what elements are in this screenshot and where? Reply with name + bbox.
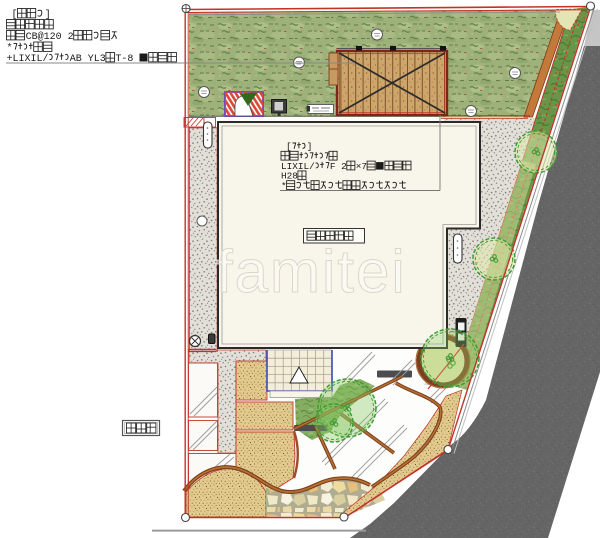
svg-text:[: [ — [12, 9, 18, 21]
svg-text:CB@120 2: CB@120 2 — [26, 31, 74, 43]
svg-text:F 2: F 2 — [330, 161, 347, 172]
svg-text:]: ] — [45, 9, 51, 21]
svg-text:*: * — [281, 180, 287, 191]
svg-text:]: ] — [307, 141, 313, 152]
svg-text:×7: ×7 — [356, 161, 367, 172]
svg-text:*: * — [7, 42, 13, 54]
svg-text:[: [ — [286, 141, 292, 152]
svg-text:famitei: famitei — [216, 238, 407, 305]
